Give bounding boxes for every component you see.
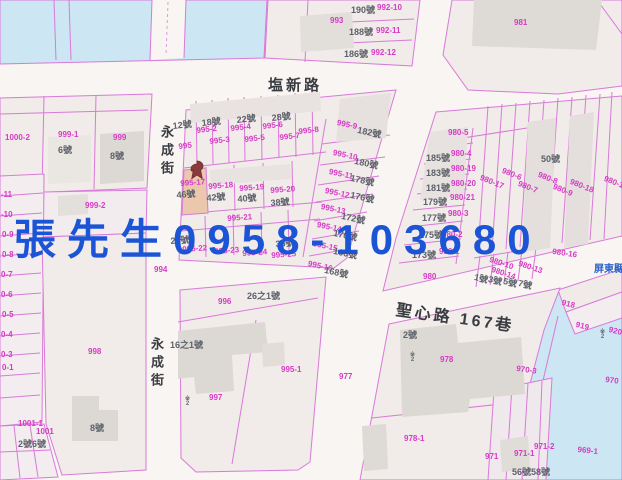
bridge	[150, 0, 186, 60]
cadastral-map[interactable]: 塩新路永成街永成街聖心路 167巷 993992-10992-11992-129…	[0, 0, 622, 480]
street-name-label: 永成街	[157, 125, 176, 179]
contact-overlay-text: 張先生0958-103680	[14, 206, 542, 267]
street-name-label: 塩新路	[268, 74, 322, 95]
street-name-label: 永成街	[147, 337, 166, 391]
